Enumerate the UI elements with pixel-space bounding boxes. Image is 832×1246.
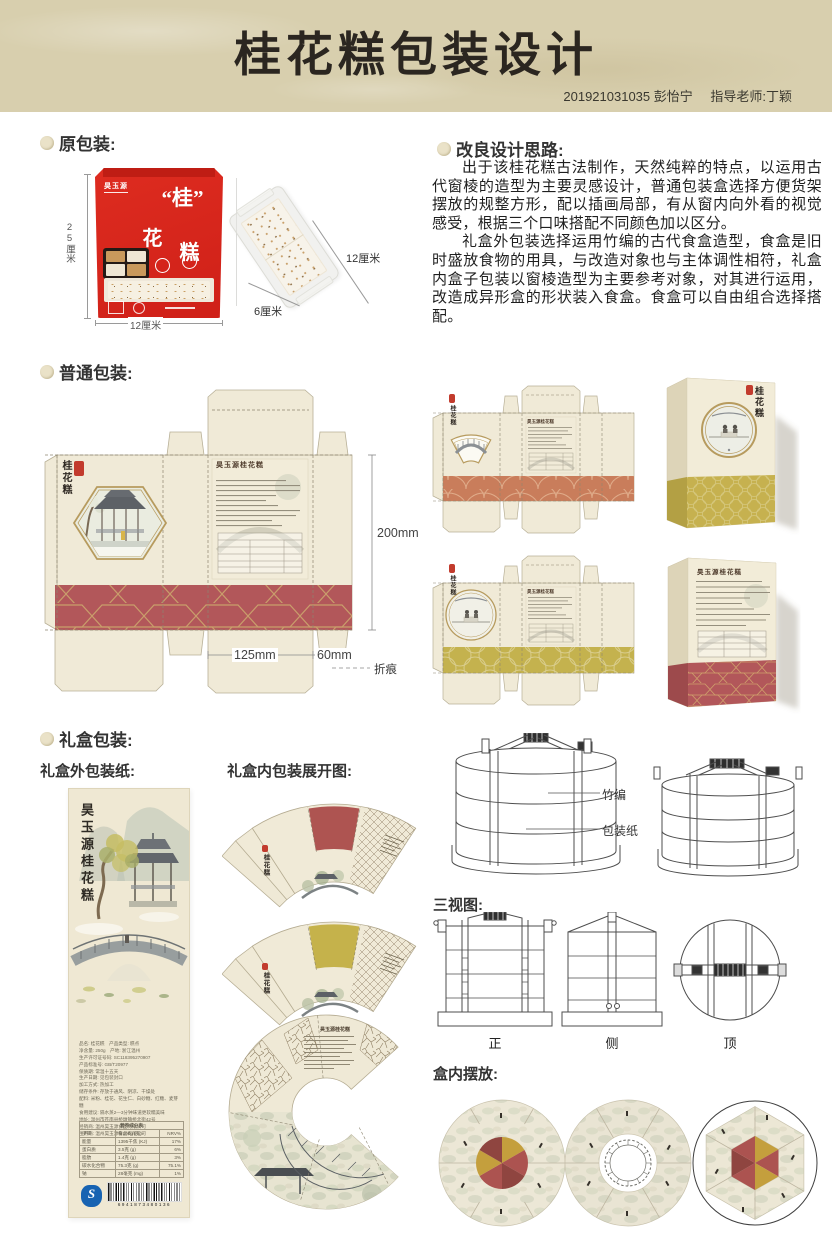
side-view-label: 侧 [582,1033,642,1052]
nutrition-cell: 碳水化合物 [80,1162,116,1170]
flavor-seal-icon [449,564,455,573]
dim-depth-label: 60mm [315,648,354,662]
box-shadow [775,415,797,530]
box-mockup-front [655,370,805,545]
nutrition-header-cell: 项目 [80,1130,116,1138]
nutrition-header-cell: NRV% [159,1130,183,1138]
small-dieline-title: 桂花糕 [448,575,457,596]
bag-lineart-cake-icon [133,302,145,314]
small-dieline-back-title: 昊玉源桂花糕 [527,589,554,595]
dieline-front-title: 桂花糕 [58,460,73,496]
small-dieline-olive [430,551,644,707]
nutrition-title: 营养成分表 [80,1122,184,1130]
arrangement-hexagon-circle [693,1101,817,1225]
photo-divider [236,178,237,306]
stone-bridge-icon [73,935,185,981]
back-label [526,417,576,473]
arrangement-solid-circle [439,1100,565,1226]
nutrition-cell: 75.1% [159,1162,183,1170]
dim-height-label: 200mm [377,526,419,540]
nutrition-cell: 28毫克 (mg) [116,1170,160,1178]
section-bullet-icon [40,365,54,379]
pavilion-icon [254,1168,314,1176]
section-bullet-icon [40,732,54,746]
bamboo-cylinder-small [654,759,802,876]
small-dieline-salmon [430,381,644,535]
flavor-seal-icon [74,461,84,476]
inner-box-unfold-diagrams [222,782,438,1220]
dieline-back-title: 昊玉源桂花糕 [216,460,264,470]
small-dieline-title: 桂花糕 [448,405,457,426]
info-line: 生产许可证号码: SC118395270907 [79,1055,182,1062]
poster-title: 桂花糕包装设计 [0,16,832,85]
redesign-paragraphs: 出于该桂花糕古法制作，天然纯粹的特点，以运用古代窗棱的造型为主要灵感设计，普通包… [432,159,822,326]
bag-flavor-badge-icon [182,254,197,269]
section-bullet-icon [40,136,54,150]
advisor-name: 指导老师:丁颖 [710,89,792,104]
arrangement-diagrams [430,1085,832,1243]
flavor-seal-icon [449,394,455,403]
three-views-drawing [432,912,824,1034]
top-view-label: 顶 [700,1033,760,1052]
circle-window-illustration [446,590,496,640]
info-line: 食用建议: 隔水蒸2—3分钟味道更软糯美味 [79,1110,182,1117]
info-line: 产品标准号: GB/T20977 [79,1062,182,1069]
nutrition-header-cell: 每100g (克) [116,1130,160,1138]
original-bag-photo: 昊玉源 “桂” 花 糕 [95,168,223,318]
c-shape-title: 昊玉源桂花糕 [300,1026,370,1033]
bag-height-dim-line [87,174,88,318]
figure-icon [121,531,125,540]
box-front-title: 桂花糕 [753,386,766,419]
fan-dieline-yellow [222,922,416,1025]
flavor-seal-icon [262,845,268,852]
c-shape-dieline [222,1015,438,1220]
qs-certification-icon: S [81,1185,102,1207]
nutrition-cell: 脂肪 [80,1154,116,1162]
back-label [212,459,308,579]
bag-char-gui: “桂” [162,182,204,212]
section-original-heading: 原包装: [40,130,116,155]
strap-block [766,767,779,775]
section-regular-heading: 普通包装: [40,359,133,384]
arrangement-ring-circle [565,1100,691,1226]
info-line: 品名: 桂花糕 产品类型: 糕点 [79,1041,182,1048]
weave-callout-label: 竹编 [602,786,626,803]
yellow-wedge [309,924,360,968]
flavor-seal-icon [262,963,268,970]
nutrition-cell: 6% [159,1146,183,1154]
barcode: 6941873480136 [107,1182,182,1207]
bamboo-cylinder-large [452,733,620,874]
outer-wrap-heading: 礼盒外包装纸: [40,760,135,781]
wrapper-vertical-title: 昊玉源桂花糕 [77,803,96,905]
design-poster: 桂花糕包装设计 201921031035 彭怡宁 指导老师:丁颖 原包装: 昊玉… [0,0,832,1246]
lily-pads-icon [76,987,169,1004]
box-shadow [776,593,798,709]
arrangement-heading: 盒内摆放: [433,1063,498,1084]
flavor-seal-icon [746,385,753,395]
barcode-number: 6941873480136 [107,1202,182,1207]
piece-length-label: 12厘米 [346,250,380,266]
nutrition-cell: 3.5克 (g) [116,1146,160,1154]
inner-unfold-heading: 礼盒内包装展开图: [227,760,352,781]
info-line: 净含量: 250g 产地: 浙江温州 [79,1048,182,1055]
section-original-label: 原包装: [59,130,116,155]
section-redesign-heading: 改良设计思路: [437,136,564,161]
fan-title: 桂花糕 [260,972,270,995]
info-line: 配料: 米粉、桂花、花生仁、白砂糖、红糖、麦芽糖 [79,1096,182,1110]
bag-window [104,278,214,302]
section-bullet-icon [437,142,451,156]
nutrition-cell: 75.3克 (g) [116,1162,160,1170]
box-mockup-back [658,551,808,723]
bag-lineart-box-icon [108,301,124,314]
bag-flavor-badge-icon [155,258,170,273]
nutrition-cell: 3% [159,1154,183,1162]
nutrition-cell: 钠 [80,1170,116,1178]
top-view [674,920,786,1020]
nutrition-cell: 1.4克 (g) [116,1154,160,1162]
bag-height-label: 25厘米 [62,222,76,263]
paper-callout-label: 包装纸 [602,822,638,839]
box-back-title: 昊玉源桂花糕 [697,566,742,576]
nutrition-cell: 1% [159,1170,183,1178]
redesign-para-1: 出于该桂花糕古法制作，天然纯粹的特点，以运用古代窗棱的造型为主要灵感设计，普通包… [432,159,822,233]
bag-width-label: 12厘米 [128,317,163,332]
fan-dieline-red [222,804,416,907]
piece-width-label: 6厘米 [254,303,282,319]
red-wedge [309,806,360,850]
section-giftbox-heading: 礼盒包装: [40,726,133,751]
redesign-para-2: 礼盒外包装选择运用竹编的古代食盒造型，食盒是旧时盛放食物的用具，与改造对象也与主… [432,233,822,326]
nutrition-table: 营养成分表 项目 每100g (克) NRV% 能量 1395千焦 (KJ) 1… [79,1121,184,1178]
nutrition-cell: 17% [159,1138,183,1146]
nutrition-cell: 能量 [80,1138,116,1146]
bag-brand-logo: 昊玉源 [104,181,128,193]
fold-legend-label: 折痕 [374,661,397,677]
front-view [434,912,556,1026]
dim-width-label: 125mm [232,648,278,662]
author-credit: 201921031035 彭怡宁 指导老师:丁颖 [432,86,792,105]
landscape-texture [222,1112,438,1220]
poster-header: 桂花糕包装设计 201921031035 彭怡宁 指导老师:丁颖 [0,0,832,112]
bamboo-food-box-drawings [428,733,832,891]
student-id-name: 201921031035 彭怡宁 [563,89,692,104]
circle-window-illustration [702,403,756,457]
bag-cake-photo [103,248,149,280]
front-view-label: 正 [465,1033,525,1052]
section-giftbox-label: 礼盒包装: [59,726,133,751]
back-label [526,587,576,645]
figure-icon [125,935,129,943]
section-regular-label: 普通包装: [59,359,133,384]
nutrition-cell: 蛋白质 [80,1146,116,1154]
bag-char-hua: 花 [142,222,162,251]
bag-fineprint [165,307,195,309]
bag-crimp [103,168,216,177]
nutrition-cell: 1395千焦 (KJ) [116,1138,160,1146]
side-view [562,912,662,1026]
giftbox-wrapper-strip: 昊玉源桂花糕 品名: 桂花糕 产品类型: 糕点 净含量: 250g 产地: 浙江… [68,788,190,1218]
original-piece-photo [227,184,342,311]
fan-title: 桂花糕 [260,854,270,877]
section-redesign-label: 改良设计思路: [456,136,564,161]
center-pie [476,1137,528,1189]
small-dieline-back-title: 昊玉源桂花糕 [527,419,554,425]
